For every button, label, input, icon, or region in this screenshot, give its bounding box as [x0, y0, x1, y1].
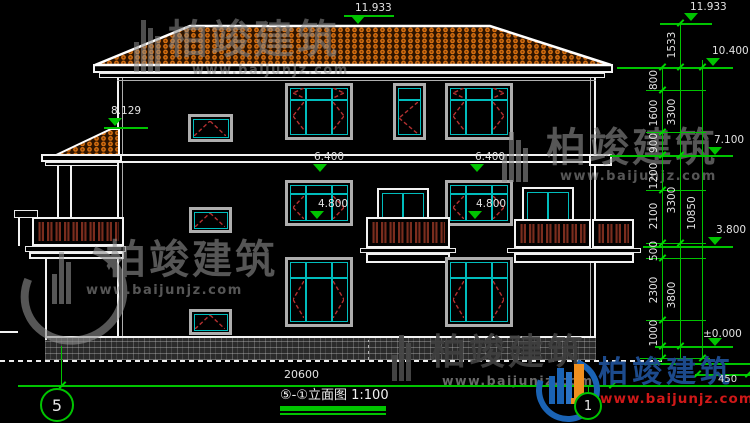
level-flag-icon: [108, 118, 122, 126]
level-flag-icon: [313, 164, 327, 172]
wing-wall-left: [45, 258, 47, 340]
balcony-corner-railing: [592, 219, 634, 248]
axis-5-line: [61, 346, 62, 386]
cornice-right-step: [589, 154, 612, 166]
window-floor3-narrow: [393, 83, 426, 140]
level-flag-icon: [706, 58, 720, 66]
level-flag-icon: [684, 13, 698, 21]
level-4800-right: 4.800: [476, 199, 506, 210]
level-6400-right: 6.400: [475, 152, 505, 163]
dim-inner-1200: 1200: [649, 163, 660, 190]
balcony-right-railing: [514, 219, 591, 248]
dim-inner-500: 500: [649, 241, 660, 261]
frieze-line: [117, 80, 596, 81]
balcony-center-slab: [366, 253, 450, 263]
level-wing-roof: 8.129: [111, 106, 141, 117]
level-flag-icon: [708, 237, 722, 245]
axis-number: 1: [584, 399, 592, 414]
window-floor1-left: [285, 257, 353, 327]
dim-inner-900: 900: [649, 133, 660, 153]
window-floor3-right: [445, 83, 513, 140]
plinth-joint-line: [368, 340, 369, 360]
axis-number: 5: [52, 396, 62, 415]
dim-middle-1533: 1533: [667, 32, 678, 59]
level-flag-icon: [468, 211, 482, 219]
title-underline-thin: [280, 413, 386, 415]
dim-inner-1000: 1000: [649, 320, 660, 347]
level-flag-icon: [708, 147, 722, 155]
watermark-url-text: www.baijunjz.com: [86, 284, 243, 297]
watermark-url-text: www.baijunjz.com: [560, 170, 717, 183]
dim-middle-3300a: 3300: [667, 99, 678, 126]
brand-glyph-icon: [52, 252, 71, 304]
balcony-right-slab: [514, 253, 634, 263]
dim-inner-1600: 1600: [649, 100, 660, 127]
level-4800-left: 4.800: [318, 199, 348, 210]
level-line-7100: [610, 155, 733, 157]
dim-middle-3800: 3800: [667, 282, 678, 309]
window-small-floor3: [188, 114, 233, 142]
dim-inner-2100: 2100: [649, 203, 660, 230]
level-wing-line: [104, 127, 148, 129]
dim-middle-3300b: 3300: [667, 187, 678, 214]
logo-brand-text: 柏竣建筑: [598, 358, 734, 388]
level-3800: 3.800: [716, 225, 746, 236]
porch-pillar: [57, 166, 72, 218]
level-10400: 10.400: [712, 46, 749, 57]
window-small-floor2: [189, 207, 232, 233]
ground-ext-left: [0, 331, 18, 333]
logo-url-text: www.baijunjz.com: [600, 393, 750, 407]
axis-bubble-1: 1: [574, 392, 602, 420]
level-line-zero: [655, 346, 733, 348]
floor3-band: [117, 154, 596, 163]
brand-logo: 柏竣建筑 www.baijunjz.com: [536, 354, 750, 422]
level-7100: 7.100: [714, 135, 744, 146]
level-line-10400: [617, 67, 733, 69]
level-ridge: 11.933: [355, 3, 392, 14]
dim-inner-800: 800: [649, 70, 660, 90]
wall-right-outline: [594, 73, 596, 340]
window-floor1-right: [445, 257, 513, 327]
width-dim-text: 20600: [284, 369, 319, 380]
level-flag-icon: [310, 211, 324, 219]
title-underline-thick: [280, 406, 386, 411]
wall-right-inner: [590, 75, 591, 338]
drawing-title: ⑤-①立面图 1:100: [280, 389, 389, 402]
dim-total-10850: 10850: [687, 196, 698, 229]
plinth-masonry: [45, 338, 596, 360]
wing-eave-soffit: [45, 162, 118, 166]
dim-inner-2300: 2300: [649, 277, 660, 304]
watermark-brand-text: 柏竣建筑: [106, 240, 278, 280]
level-flag-icon: [351, 16, 365, 24]
terrace-railing: [32, 217, 124, 246]
dim-chain-inner-line: [662, 67, 663, 358]
wing-eave-band: [41, 154, 122, 162]
main-roof: [92, 22, 614, 77]
level-flag-icon: [708, 338, 722, 346]
level-6400-left: 6.400: [314, 152, 344, 163]
level-11933-right: 11.933: [690, 2, 727, 13]
dim-ext-line: [660, 23, 712, 25]
dim-chain-outer-line: [702, 60, 703, 358]
dim-ext-line: [646, 90, 706, 91]
level-flag-icon: [470, 164, 484, 172]
window-small-floor1: [189, 309, 232, 335]
axis-bubble-5: 5: [40, 388, 74, 422]
ground-offset-dim: 450: [718, 375, 737, 385]
terrace-slab: [29, 252, 124, 259]
balcony-center-railing: [366, 217, 450, 248]
window-floor3-left: [285, 83, 353, 140]
elevation-drawing: 柏竣建筑 www.baijunjz.com 柏竣建筑 www.baijunjz.…: [0, 0, 750, 423]
